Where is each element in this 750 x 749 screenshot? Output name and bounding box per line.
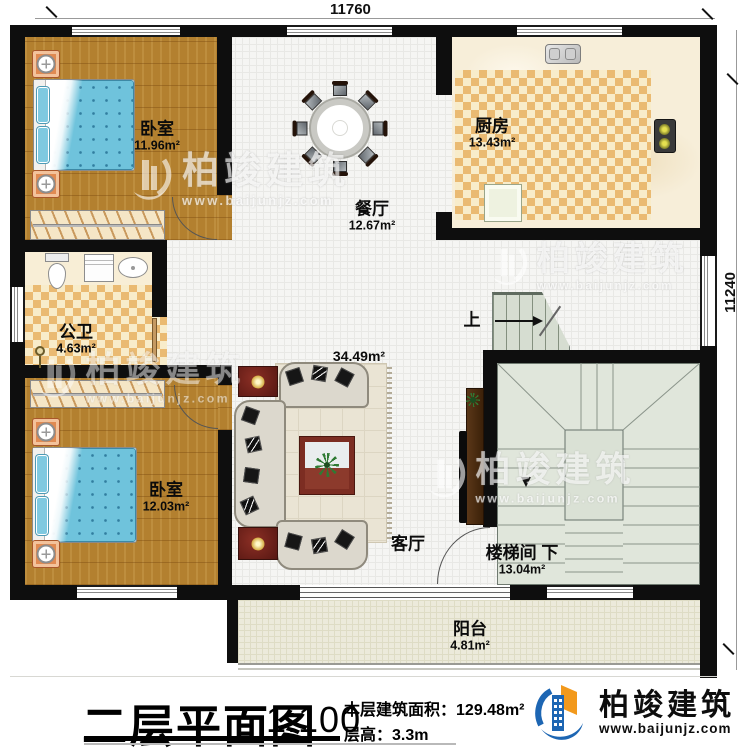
room-label-balcony: 阳台4.81m² bbox=[450, 619, 490, 652]
window-bottom-bedroom2 bbox=[77, 585, 177, 600]
sofa-cushion bbox=[311, 537, 328, 554]
wall-bedroom1-right bbox=[217, 37, 232, 195]
room-label-dining: 餐厅12.67m² bbox=[349, 199, 396, 232]
nightstand bbox=[33, 51, 59, 77]
window-top-dining bbox=[287, 25, 392, 37]
floor-plan-page: 卧室11.96m² 餐厅12.67m² 厨房13.43m² 公卫4.63m² 卧… bbox=[0, 0, 750, 749]
bed-pillow bbox=[36, 455, 48, 493]
wall-bathroom-right bbox=[152, 252, 167, 317]
side-table bbox=[238, 366, 278, 397]
side-table bbox=[238, 527, 278, 560]
stove-burner bbox=[659, 138, 670, 149]
stair-down-arrowhead bbox=[521, 477, 531, 487]
sliding-door-balcony bbox=[300, 587, 510, 598]
stair-up-arrow-line bbox=[495, 320, 535, 322]
room-label-living-name: 客厅 bbox=[391, 534, 425, 553]
bed-pillow bbox=[37, 127, 49, 163]
floor-drain-stem bbox=[39, 356, 41, 368]
dimension-right-value: 11240 bbox=[722, 272, 739, 313]
kitchen-sink-basin bbox=[549, 48, 560, 60]
brand-logo-icon bbox=[531, 681, 593, 745]
wall-bottom-seg2 bbox=[177, 585, 300, 600]
floor-height-label: 层高： bbox=[344, 727, 392, 744]
dimension-tick bbox=[722, 643, 734, 655]
window-bottom-stairwell bbox=[547, 585, 633, 600]
floor-area-row: 本层建筑面积：129.48m² bbox=[344, 699, 525, 724]
bed-pillow bbox=[37, 87, 49, 123]
floor-area-label: 本层建筑面积： bbox=[344, 702, 456, 719]
wall-balcony-left bbox=[227, 585, 238, 663]
bed-pillow bbox=[36, 497, 48, 535]
bed-bedroom2 bbox=[32, 447, 137, 543]
room-label-bedroom1: 卧室11.96m² bbox=[134, 119, 180, 152]
brand-website: www.baijunjz.com bbox=[599, 721, 735, 736]
bed-sheet-fold bbox=[46, 448, 93, 542]
nightstand bbox=[33, 541, 59, 567]
wall-bedroom2-right-top bbox=[218, 378, 232, 385]
wardrobe-bedroom1 bbox=[30, 210, 165, 240]
bed-bedroom1 bbox=[33, 79, 135, 171]
sofa-cushion bbox=[245, 436, 263, 454]
nightstand bbox=[33, 419, 59, 445]
floor-drain bbox=[35, 346, 45, 356]
floor-bedroom2-door-sill bbox=[218, 385, 232, 430]
tv-screen bbox=[459, 431, 467, 523]
window-top-bedroom1 bbox=[72, 25, 180, 37]
dining-chair bbox=[293, 120, 308, 138]
kitchen-cabinet bbox=[484, 184, 522, 222]
floor-area-value: 129.48m² bbox=[456, 702, 525, 719]
window-top-kitchen bbox=[517, 25, 622, 37]
nightstand bbox=[33, 171, 59, 197]
room-label-bedroom2: 卧室12.03m² bbox=[143, 480, 190, 513]
stair-up-arrowhead bbox=[533, 316, 543, 326]
sofa-cushion bbox=[243, 467, 260, 484]
bed-sheet-fold bbox=[47, 80, 93, 170]
bathroom-sink-drain bbox=[131, 266, 135, 270]
plan-base-line bbox=[10, 676, 717, 677]
wall-dining-kitchen-top bbox=[436, 37, 452, 95]
balcony-railing-line bbox=[238, 663, 700, 665]
window-left-bathroom bbox=[10, 287, 25, 342]
stair-down-label: 下 bbox=[541, 543, 558, 562]
room-label-living-area: 34.49m² bbox=[333, 349, 385, 365]
wall-stairwell-left bbox=[483, 350, 497, 527]
room-label-bathroom: 公卫4.63m² bbox=[56, 322, 96, 355]
tv-cabinet bbox=[466, 388, 484, 525]
dimension-right-line bbox=[736, 30, 737, 670]
washing-machine bbox=[84, 254, 114, 282]
wall-bottom-seg3 bbox=[510, 585, 547, 600]
stove-burner bbox=[659, 124, 670, 135]
balcony-railing-line bbox=[238, 668, 700, 670]
brand-block: 柏竣建筑 www.baijunjz.com bbox=[531, 681, 735, 745]
plan-info: 本层建筑面积：129.48m² 层高：3.3m bbox=[344, 699, 525, 749]
sofa-cushion bbox=[311, 365, 328, 382]
dining-chair bbox=[331, 81, 349, 96]
stair-up-label: 上 bbox=[464, 310, 481, 329]
wall-bottom-seg4 bbox=[633, 585, 700, 600]
dining-chair bbox=[331, 161, 349, 176]
tv-plant bbox=[466, 393, 480, 407]
dimension-top-value: 11760 bbox=[330, 1, 371, 18]
dimension-top-line bbox=[35, 18, 715, 19]
kitchen-sink-basin bbox=[565, 48, 576, 60]
room-label-kitchen: 厨房13.43m² bbox=[469, 116, 516, 149]
wall-stairwell-top bbox=[483, 350, 703, 363]
floor-height-row: 层高：3.3m bbox=[344, 724, 525, 749]
wall-bottom-seg1 bbox=[10, 585, 77, 600]
floor-bedroom1-door-sill bbox=[217, 195, 232, 240]
wall-kitchen-bottom bbox=[436, 228, 700, 240]
wardrobe-bedroom2 bbox=[30, 380, 165, 408]
room-label-stairwell: 楼梯间 下 13.04m² bbox=[486, 543, 559, 576]
wall-bedroom2-right bbox=[218, 430, 232, 585]
dimension-tick bbox=[45, 6, 57, 18]
floor-height-value: 3.3m bbox=[392, 727, 428, 744]
wall-bedroom1-bottom bbox=[10, 240, 167, 252]
dining-chair bbox=[373, 120, 388, 138]
door-leaf-bathroom bbox=[152, 318, 157, 362]
wall-bathroom-bedroom2 bbox=[10, 365, 232, 378]
potted-plant bbox=[315, 453, 339, 477]
brand-name: 柏竣建筑 bbox=[599, 690, 735, 722]
toilet-tank bbox=[45, 253, 69, 262]
dining-table bbox=[311, 99, 369, 157]
window-right-hall bbox=[700, 256, 717, 346]
